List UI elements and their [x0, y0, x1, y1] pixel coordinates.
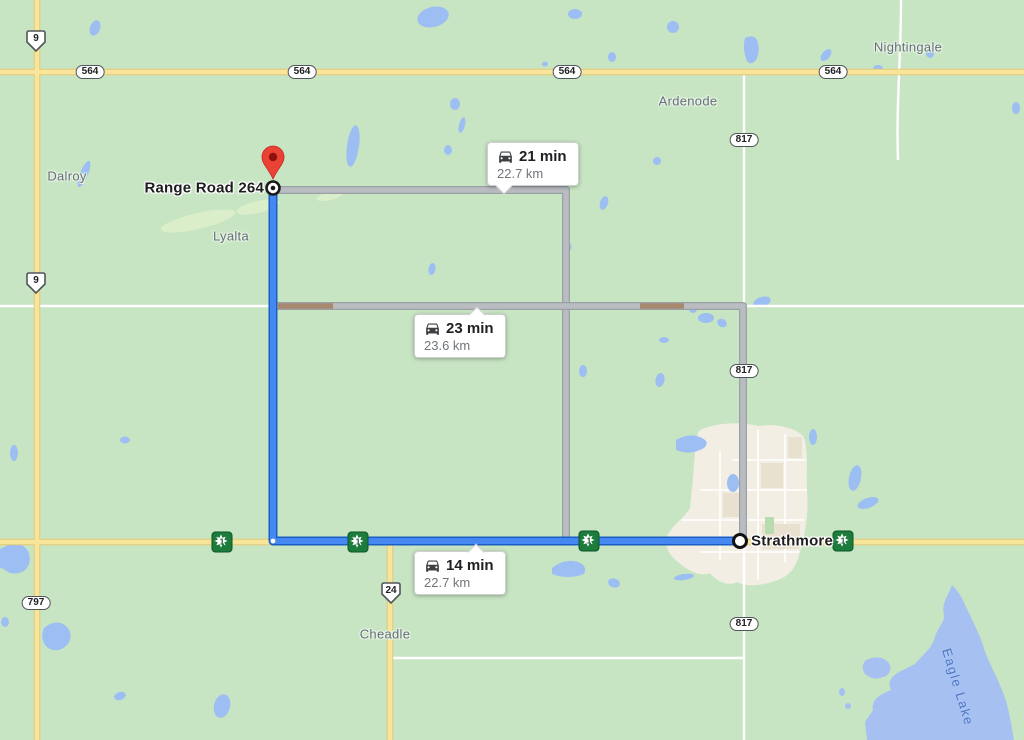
- transcanada-shield-1: 1: [833, 531, 854, 552]
- shield-number: 1: [213, 537, 232, 547]
- highway-shield-564: 564: [288, 65, 317, 79]
- route-selected[interactable]: [271, 193, 738, 543]
- highways: [0, 0, 1024, 740]
- place-label-cheadle: Cheadle: [360, 627, 411, 642]
- route-bubble-14min[interactable]: 14 min 22.7 km: [414, 551, 506, 595]
- shield-number: 817: [736, 134, 753, 145]
- highway-shield-9: 9: [26, 30, 46, 52]
- route-duration: 23 min: [446, 320, 494, 337]
- shield-number: 1: [834, 536, 853, 546]
- shield-number: 24: [381, 585, 401, 596]
- destination-label: Range Road 264: [144, 180, 264, 197]
- route-distance: 22.7 km: [424, 575, 494, 590]
- shield-number: 817: [736, 618, 753, 629]
- shield-number: 564: [559, 66, 576, 77]
- origin-marker[interactable]: [734, 535, 747, 548]
- route-distance: 22.7 km: [497, 166, 567, 181]
- route-distance: 23.6 km: [424, 338, 494, 353]
- car-icon: [424, 320, 441, 337]
- origin-label: Strathmore: [751, 533, 833, 550]
- route-alternate-north[interactable]: [273, 190, 566, 541]
- highway-shield-817: 817: [730, 617, 759, 631]
- urban-pond: [727, 474, 739, 492]
- shield-number: 1: [349, 537, 368, 547]
- route-duration: 14 min: [446, 557, 494, 574]
- shield-number: 564: [294, 66, 311, 77]
- route-bubble-23min[interactable]: 23 min 23.6 km: [414, 314, 506, 358]
- highway-shield-9: 9: [26, 272, 46, 294]
- place-label-nightingale: Nightingale: [874, 40, 942, 55]
- highway-shield-564: 564: [819, 65, 848, 79]
- highway-shield-817: 817: [730, 133, 759, 147]
- shield-number: 817: [736, 365, 753, 376]
- car-icon: [497, 148, 514, 165]
- transcanada-shield-1: 1: [212, 532, 233, 553]
- highway-shield-817: 817: [730, 364, 759, 378]
- shield-number: 1: [580, 536, 599, 546]
- transcanada-shield-1: 1: [579, 531, 600, 552]
- highway-shield-564: 564: [76, 65, 105, 79]
- eagle-lake: [839, 585, 1014, 740]
- shield-number: 797: [28, 597, 45, 608]
- route-waypoint-dot: [271, 539, 276, 544]
- car-icon: [424, 557, 441, 574]
- shield-number: 564: [82, 66, 99, 77]
- destination-pin-icon[interactable]: [262, 146, 284, 179]
- route-duration: 21 min: [519, 148, 567, 165]
- highway-shield-24: 24: [381, 582, 401, 604]
- highway-shield-797: 797: [22, 596, 51, 610]
- place-label-lyalta: Lyalta: [213, 229, 249, 244]
- map-canvas[interactable]: 9 9 24 564 564 564 564 817 817 817 797 1…: [0, 0, 1024, 740]
- shield-number: 9: [26, 275, 46, 286]
- route-alternate-middle[interactable]: [276, 306, 743, 541]
- place-label-ardenode: Ardenode: [659, 94, 718, 109]
- highway-shield-564: 564: [553, 65, 582, 79]
- map-geometry: [0, 0, 1024, 740]
- transcanada-shield-1: 1: [348, 532, 369, 553]
- place-label-dalroy: Dalroy: [47, 169, 86, 184]
- shield-number: 9: [26, 33, 46, 44]
- route-bubble-21min[interactable]: 21 min 22.7 km: [487, 142, 579, 186]
- ponds: [0, 3, 1020, 719]
- urban-park: [765, 517, 774, 534]
- minor-roads: [0, 0, 1024, 740]
- destination-marker[interactable]: [267, 182, 280, 195]
- shield-number: 564: [825, 66, 842, 77]
